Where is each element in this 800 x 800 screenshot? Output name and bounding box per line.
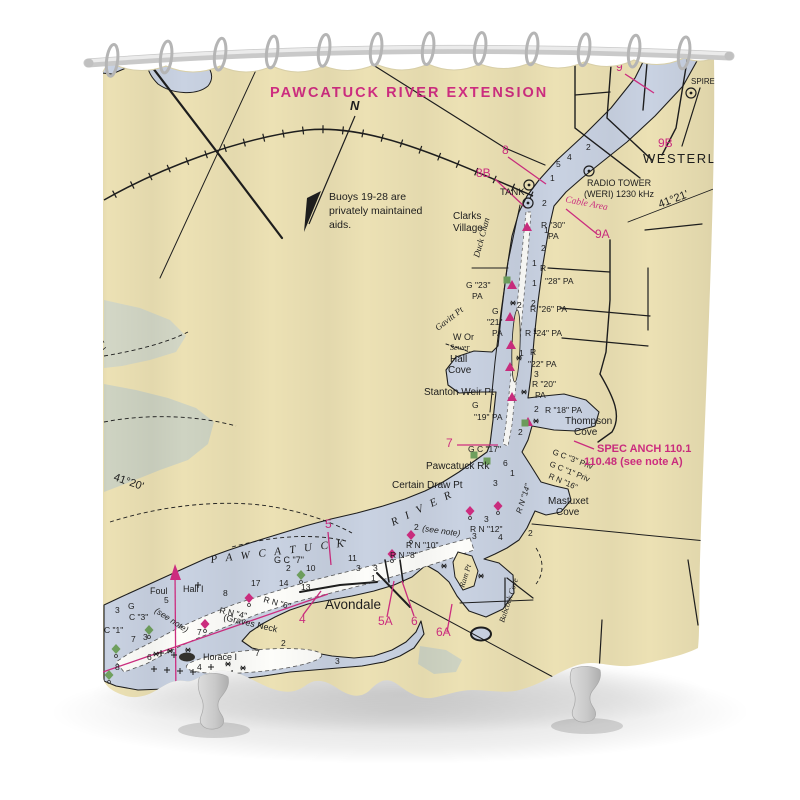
rod-end-left <box>85 59 94 68</box>
rod-end-right <box>725 52 734 61</box>
curtain-fold-shading <box>95 40 725 720</box>
shower-curtain: WESTERLYRADIO TOWER(WERI) 1230 kHzSPIRET… <box>80 40 726 720</box>
shower-curtain-product-photo: WESTERLYRADIO TOWER(WERI) 1230 kHzSPIRET… <box>0 0 800 800</box>
